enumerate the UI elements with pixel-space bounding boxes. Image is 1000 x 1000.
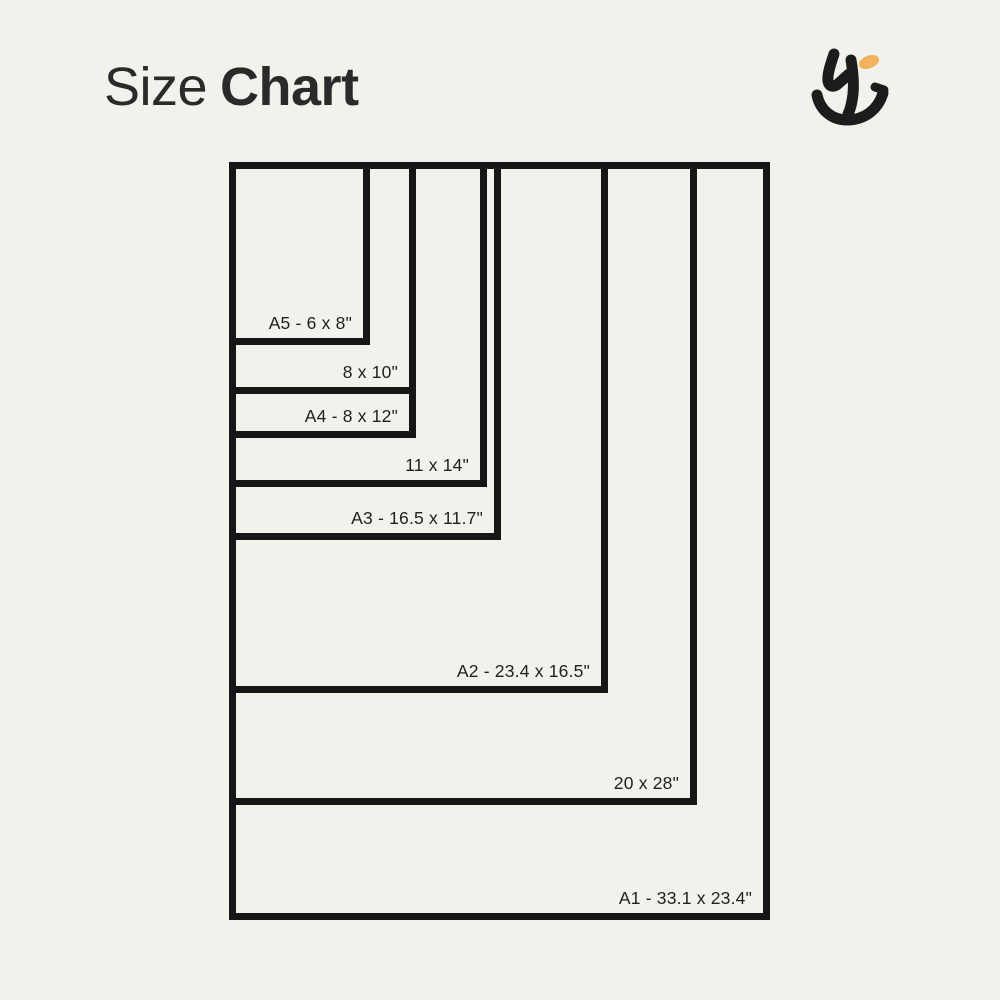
size-label-a1: A1 - 33.1 x 23.4": [619, 888, 752, 909]
poster-canvas: SizeChart A5 - 6 x 8"8 x 10"A4 - 8 x 12"…: [0, 0, 1000, 1000]
size-diagram: A5 - 6 x 8"8 x 10"A4 - 8 x 12"11 x 14"A3…: [0, 0, 1000, 1000]
size-rect-a1: A1 - 33.1 x 23.4": [229, 162, 770, 920]
